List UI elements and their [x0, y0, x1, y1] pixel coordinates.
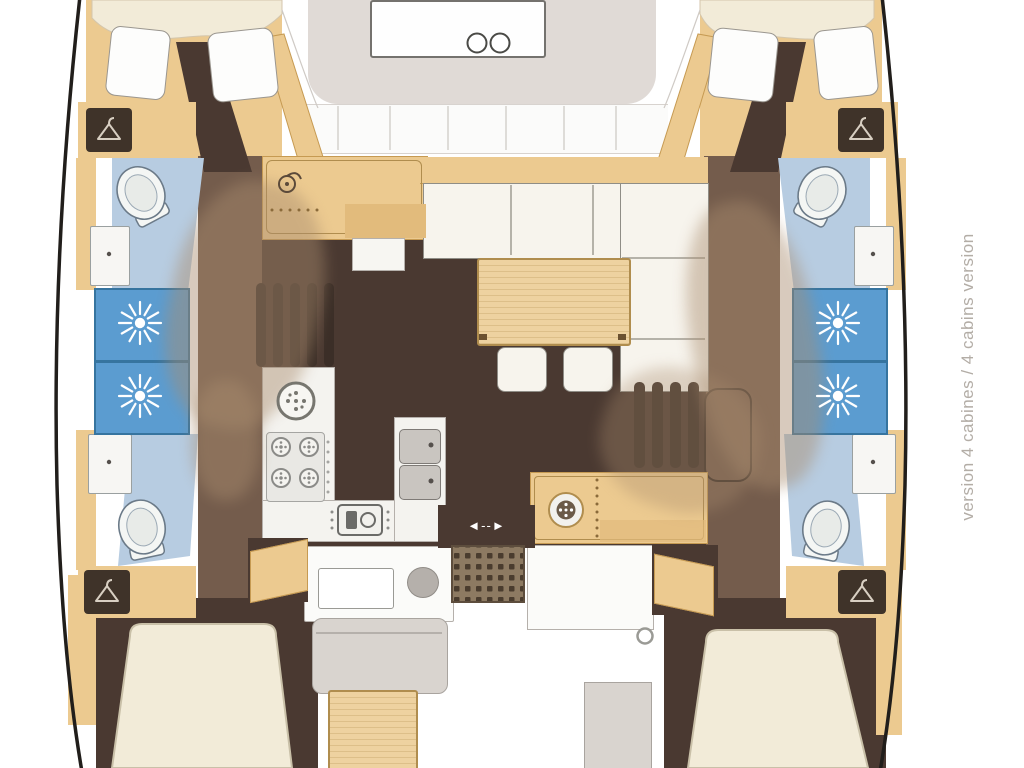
aft-starboard-counter-shelf: [600, 520, 706, 542]
port-pillow-right: [207, 27, 280, 104]
salon-shelf: [420, 157, 708, 184]
starboard-aft-locker-iconbox: [838, 570, 886, 614]
port-forward-toilet-icon: [108, 158, 176, 231]
starboard-aft-toilet-icon: [797, 497, 854, 563]
port-aft-locker-iconbox: [84, 570, 130, 614]
cockpit-starboard-counter: [527, 545, 654, 630]
port-forward-bath-sink: [90, 226, 130, 286]
galley-under-shelf: [352, 238, 405, 271]
starboard-deck-curve: [664, 10, 700, 108]
port-lower-shading-blob: [192, 380, 260, 500]
sofa-seam-1: [510, 185, 512, 255]
starboard-forward-locker-iconbox: [838, 108, 884, 152]
salon-stool-right: [563, 347, 613, 392]
port-aft-cabin-floor: [96, 598, 318, 768]
port-aft-bath-sink: [88, 434, 132, 494]
galley-hob-panel: [266, 432, 325, 502]
starboard-pillow-left: [707, 27, 780, 104]
starboard-forward-toilet-icon: [787, 158, 855, 231]
salon-stool-left: [497, 347, 547, 392]
boat-floorplan: ◄--► version 4 cabines / 4 cabins versio…: [0, 0, 1024, 768]
sliding-door-arrow-icon: ◄--►: [440, 508, 533, 542]
galley-sink-basin-2: [399, 465, 441, 500]
starboard-aft-cabin-floor: [664, 598, 886, 768]
cockpit-bench-seam: [316, 632, 442, 634]
port-forward-locker-iconbox: [86, 108, 132, 152]
bow-locker-panel: [370, 0, 546, 58]
version-side-label: version 4 cabines / 4 cabins version: [953, 162, 983, 592]
port-aft-toilet-icon: [114, 496, 171, 562]
sliding-door-arrow-label: ◄--►: [467, 518, 505, 533]
cockpit-table: [328, 690, 418, 768]
cockpit-starboard-box: [584, 682, 652, 768]
starboard-aft-bath-sink: [852, 434, 896, 494]
galley-counter-lower-tier: [345, 204, 426, 238]
cockpit-bench: [312, 618, 448, 694]
salon-table: [477, 258, 631, 346]
galley-sink-basin-1: [399, 429, 441, 464]
starboard-forward-bath-sink: [854, 226, 894, 286]
starboard-pillow-right: [813, 25, 880, 101]
port-pillow-left: [105, 25, 172, 101]
cockpit-round-grill: [407, 567, 439, 598]
windshield-band: [300, 104, 668, 154]
cockpit-hatch-seat: [318, 568, 394, 609]
port-steps-bar-5: [324, 283, 334, 367]
sofa-seam-2: [592, 185, 594, 255]
